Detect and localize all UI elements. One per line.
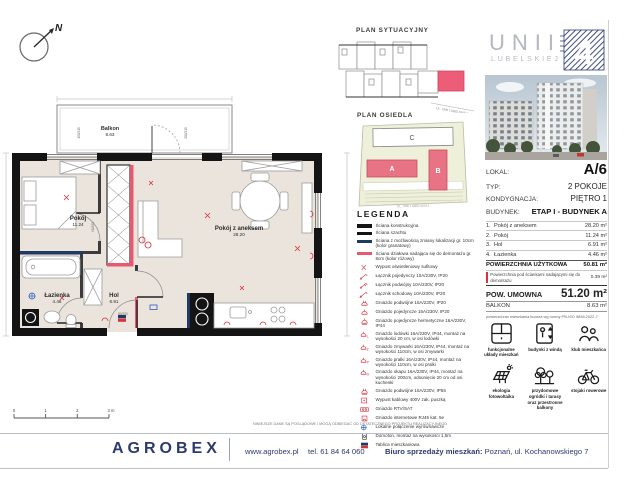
room-no: 1. [486,223,494,229]
demountable-note: Powierzchnia pod ściankami nadającymi si… [486,270,607,285]
norm-footnote: powierzchnia mieszkania liczona wg normy… [486,314,607,319]
legend-item-label: Ściana konstrukcyjna [376,223,419,228]
switch-stair-icon [357,291,372,298]
socket-washer-icon [357,357,372,364]
building-a-label: A [389,166,394,173]
legend-item: Gniazdo pojedyncze 16A/230V, IP20 [357,309,475,316]
amenity-residents-club: klub mieszkańca [568,322,609,358]
compass-north-label: N [55,23,63,34]
note-red-bar [486,272,488,283]
socket-hood-icon [357,369,372,376]
contract-label: POW. UMOWNA [486,290,542,299]
lokal-label: LOKAL: [486,169,509,176]
footer-office-value: Poznań, ul. Kochanowskiego 7 [485,447,589,456]
logo-wordmark: UNII [489,30,561,56]
floorplan-icon [490,322,513,345]
room-area: 11.24 m² [585,233,607,239]
footer-phone: tel. 61 84 64 060 [308,447,365,456]
legend-item-label: Ściana szachtu [376,230,407,235]
legend-item: Ściana z możliwością zmiany lokalizacji … [357,238,475,249]
legend-title: LEGENDA [357,209,475,219]
legend-item-label: Gniazdo okapu 16A/230V, IP44, montaż na … [376,369,476,385]
legend-item: Łącznik podwójny 10A/230V, IP20 [357,282,475,289]
legend-item-label: Łącznik schodowy 10A/230V, IP20 [376,291,446,296]
photovoltaics-icon [490,364,513,387]
legend-item: Gniazdo internetowe RJ45 kat. 5e [357,415,475,422]
lokal-value: A/6 [584,161,607,178]
room-area: 28.20 m² [585,223,607,229]
legend-item-label: Gniazdo lodówki 16A/230V, IP44, montaż n… [376,331,476,342]
legend-item-label: Łącznik pojedynczy 10A/230V, IP20 [376,273,448,278]
legend-item-label: Gniazdo pojedyncze hermetyczne 16A/230V,… [376,318,476,329]
room-row: 1.Pokój z aneksem28.20 m² [486,221,607,231]
footer-office: Biuro sprzedaży mieszkań: Poznań, ul. Ko… [385,447,588,456]
legend-item: Ściana szachtu [357,230,475,235]
legend-item: Gniazdo podwójne 16A/230V, IP55 [357,388,475,395]
socket-ip55-icon [357,388,372,395]
legend-item: Ściana konstrukcyjna [357,223,475,228]
amenities-grid: funkcjonalne układy mieszkań budynki z w… [481,322,609,411]
amenity-gardens: przydomowe ogródki i tarasy oraz przestr… [525,364,566,411]
situational-plan: UL. UNII LUBELSKIEJ [336,37,476,113]
building-c-label: C [409,135,414,142]
amenity-bike-racks: stojaki rowerowe [568,364,609,411]
legend-item-label: Wypust kablowy 400V zak. puszką [376,397,446,402]
typ-label: TYP: [486,184,501,191]
legend-item: Gniazdo podwójne 16A/230V, IP20 [357,300,475,307]
legend-item: Łącznik pojedynczy 10A/230V, IP20 [357,273,475,280]
building-b-label: B [435,168,440,175]
socket-rtv-icon [357,406,372,413]
legend-item: Ściana działowa nadająca się do demontaż… [357,251,475,262]
balcony-row: BALKON8.63 m² [486,301,607,312]
room-area-balkon: 8.63 [106,132,115,137]
socket-double-icon [357,300,372,307]
socket-fridge-icon [357,331,372,338]
legend-item-label: Gniazdo podwójne 16A/230V, IP20 [376,300,446,305]
room-area-lazienka: 4.46 [53,299,62,304]
room-no: 3. [486,242,494,248]
amenity-photovoltaics: ekologia fotowoltaika [481,364,522,411]
kondygnacja-label: KONDYGNACJA: [486,196,538,203]
scale-tick: 2 [76,408,79,413]
data-disclaimer: NINIEJSZE DANE SĄ POGLĄDOWE I MOGĄ ODBIE… [253,422,423,426]
note-text: Powierzchnia pod ściankami nadającymi si… [490,272,588,283]
note-value: 0.39 m² [591,275,607,280]
shaft [107,165,130,265]
building-photo [485,75,607,160]
legend-item: Gniazdo RTV/SAT [357,406,475,413]
footer-office-label: Biuro sprzedaży mieszkań: [385,447,482,456]
room-no: 4. [486,252,494,258]
kondygnacja-value: PIĘTRO 1 [571,194,607,203]
amenity-label: funkcjonalne układy mieszkań [481,347,522,358]
wall-solid-swatch [357,224,372,229]
room-name: Hol [494,242,588,248]
legend-item-label: Ściana działowa nadająca się do demontaż… [376,251,476,262]
wall-shaft-swatch [357,232,372,235]
dim-label-window1: 150/215 [77,127,81,139]
typ-value: 2 POKOJE [568,182,607,191]
legend-item: Łącznik schodowy 10A/230V, IP20 [357,291,475,298]
room-area: 6.91 m² [588,242,607,248]
room-row: 4.Łazienka4.46 m² [486,250,607,260]
footer-website-link[interactable]: www.agrobex.pl [245,447,299,456]
logo-number-icon: 4 [560,28,606,74]
estate-plan-title: PLAN OSIEDLA [357,112,413,119]
room-area-hol: 6.91 [110,299,119,304]
legend-item: Gniazdo okapu 16A/230V, IP44, montaż na … [357,369,475,385]
legend-item-label: Gniazdo pralki 16A/230V, IP44, montaż na… [376,357,476,368]
legend-item: Gniazdo pralki 16A/230V, IP44, montaż na… [357,357,475,368]
legend-item: Gniazdo lodówki 16A/230V, IP44, montaż n… [357,331,475,342]
footer-divider [229,438,230,461]
legend-item: Gniazdo pojedyncze hermetyczne 16A/230V,… [357,318,475,329]
scale-tick: 1 [44,408,47,413]
contract-value: 51.20 m² [561,288,607,300]
wall-pink-swatch [357,252,372,255]
legend-item-label: Gniazdo RTV/SAT [376,406,413,411]
agrobex-logo: AGROBEX [112,440,221,458]
legend-item-label: Wypust oświetleniowy sufitowy [376,264,438,269]
legend-item-label: Gniazdo zmywarki 16A/230V, IP44, montaż … [376,344,476,355]
dim-label-door1: 90/200 [91,222,95,232]
contract-area-row: POW. UMOWNA51.20 m² [486,285,607,301]
usable-value: 50.81 m² [583,262,607,268]
legend-item: Wypust kablowy 400V zak. puszką [357,397,475,404]
street-label: UL. UNII LUBELSKIEJ [397,204,430,209]
balcony-value: 8.63 m² [587,303,607,309]
apartment-details-card: LOKAL:A/6 TYP:2 POKOJE KONDYGNACJA:PIĘTR… [486,161,607,319]
room-name: Pokój z aneksem [494,223,585,229]
residents-club-icon [577,322,600,345]
usable-area-row: POWIERZCHNIA UŻYTKOWA50.81 m² [486,260,607,270]
footer-bottom-rule [0,468,608,469]
legend-item-label: Gniazdo internetowe RJ45 kat. 5e [376,415,445,420]
socket-hermetic-icon [357,318,372,325]
ceiling-light-icon [357,264,372,271]
amenity-label: ekologia fotowoltaika [481,388,522,399]
room-name: Pokój [494,233,585,239]
room-row: 3.Hol6.91 m² [486,240,607,250]
scale-tick: 3 m [108,408,115,413]
logo-number: 4 [575,34,594,72]
legend-item-label: Gniazdo pojedyncze 16A/230V, IP20 [376,309,450,314]
balcony-label: BALKON [486,303,510,309]
legend-item-label: Łącznik podwójny 10A/230V, IP20 [376,282,445,287]
legend-item-label: Gniazdo podwójne 16A/230V, IP55 [376,388,446,393]
highlighted-unit [438,71,464,91]
cable-outlet-icon [357,397,372,404]
socket-dishwasher-icon [357,344,372,351]
apartment-plan-sheet: N Balkon 8.63 [0,0,640,480]
scale-tick: 0 [13,408,16,413]
dim-label-window2: 300/215 [184,127,188,139]
legend: LEGENDA Ściana konstrukcyjna Ściana szac… [357,209,475,451]
page-right-border [608,20,609,468]
compass-icon: N [12,16,64,68]
budynek-label: BUDYNEK: [486,209,520,216]
room-area: 4.46 m² [588,252,607,258]
situational-plan-title: PLAN SYTUACYJNY [356,27,429,34]
amenity-functional-layouts: funkcjonalne układy mieszkań [481,322,522,358]
intercom-icon [357,433,372,440]
balcony: Balkon 8.63 [57,105,232,153]
room-name: Łazienka [494,252,588,258]
room-row: 2.Pokój11.24 m² [486,230,607,240]
legend-item: Gniazdo zmywarki 16A/230V, IP44, montaż … [357,344,475,355]
bike-rack-icon [577,364,600,387]
room-area-pokoj: 11.24 [72,222,84,227]
switch-single-icon [357,273,372,280]
dim-label-door2: 80/200 [118,312,128,316]
legend-item: Domofon, montaż na wysokości 1,5m [357,433,475,440]
socket-single-icon [357,309,372,316]
estate-plan: C A B UL. UNII LUBELSKIEJ [355,120,471,210]
amenity-elevator: budynki z windą [525,322,566,358]
switch-double-icon [357,282,372,289]
wall-navy-swatch [357,240,372,243]
amenity-label: stojaki rowerowe [571,388,606,394]
amenity-label: budynki z windą [528,347,562,353]
elevator-icon [533,322,556,345]
legend-item-label: Ściana z możliwością zmiany lokalizacji … [376,238,476,249]
footer-top-rule [0,433,608,434]
budynek-value: ETAP I - BUDYNEK A [532,207,607,216]
socket-rj45-icon [357,415,372,422]
legend-item: Wypust oświetleniowy sufitowy [357,264,475,271]
amenity-label: klub mieszkańca [571,347,606,353]
room-area-aneks: 28.20 [233,232,245,237]
logo-subtitle: LUBELSKIEJ [491,56,561,63]
usable-label: POWIERZCHNIA UŻYTKOWA [486,262,567,268]
gardens-icon [533,364,556,387]
floor-plan: Balkon 8.63 [2,93,352,428]
scale-bar: 0 1 2 3 m [13,408,115,418]
amenity-label: przydomowe ogródki i tarasy oraz przestr… [525,388,566,411]
room-no: 2. [486,233,494,239]
